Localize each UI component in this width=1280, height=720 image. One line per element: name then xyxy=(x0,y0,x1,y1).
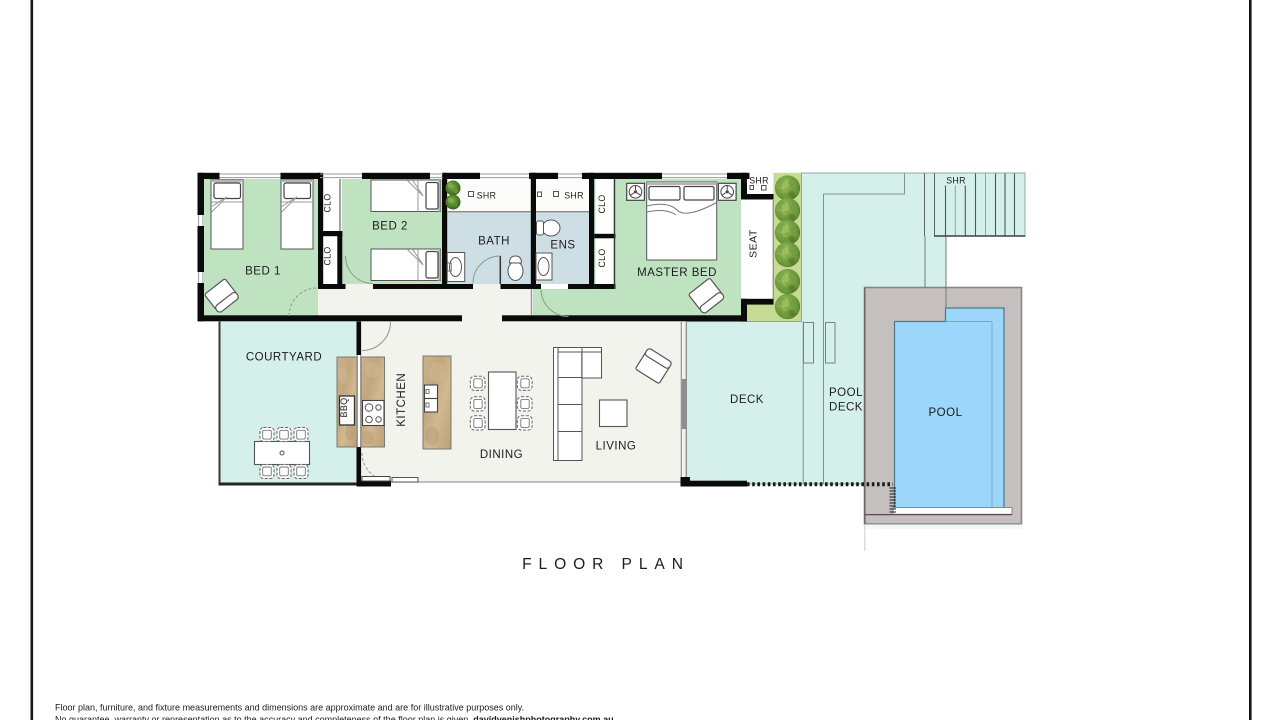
svg-text:BATH: BATH xyxy=(478,236,510,248)
svg-text:MASTER BED: MASTER BED xyxy=(637,267,717,279)
svg-text:Floor plan, furniture, and fix: Floor plan, furniture, and fixture measu… xyxy=(55,703,524,713)
svg-text:CLO: CLO xyxy=(597,195,607,214)
svg-text:FLOOR PLAN: FLOOR PLAN xyxy=(522,556,690,573)
svg-text:BED 1: BED 1 xyxy=(245,266,281,278)
svg-text:ENS: ENS xyxy=(550,240,575,252)
svg-text:POOL: POOL xyxy=(829,387,863,399)
svg-text:SHR: SHR xyxy=(946,176,965,186)
svg-text:BBQ: BBQ xyxy=(339,398,349,418)
svg-text:SHR: SHR xyxy=(564,191,583,201)
svg-text:COURTYARD: COURTYARD xyxy=(246,352,322,364)
svg-text:SHR: SHR xyxy=(477,191,496,201)
svg-text:CLO: CLO xyxy=(323,194,333,213)
svg-text:DECK: DECK xyxy=(829,402,863,414)
svg-text:CLO: CLO xyxy=(323,247,333,266)
svg-text:DINING: DINING xyxy=(480,449,523,461)
svg-text:SEAT: SEAT xyxy=(748,229,760,258)
svg-text:KITCHEN: KITCHEN xyxy=(396,373,408,427)
svg-text:No guarantee, warranty or repr: No guarantee, warranty or representation… xyxy=(55,715,614,720)
svg-text:POOL: POOL xyxy=(929,407,963,419)
svg-text:BED 2: BED 2 xyxy=(372,221,408,233)
svg-text:SHR: SHR xyxy=(749,176,768,186)
svg-text:DECK: DECK xyxy=(730,394,764,406)
svg-text:LIVING: LIVING xyxy=(596,441,637,453)
svg-text:CLO: CLO xyxy=(597,249,607,268)
